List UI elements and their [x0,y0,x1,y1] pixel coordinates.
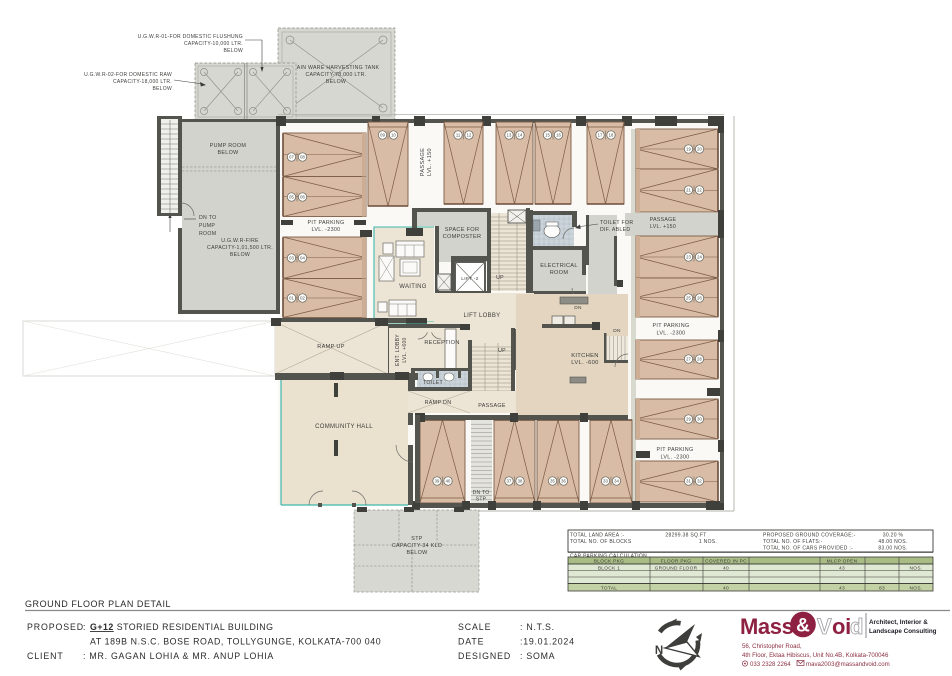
svg-text:21: 21 [686,188,691,193]
svg-text:: MR. GAGAN LOHIA & MR. ANUP L: : MR. GAGAN LOHIA & MR. ANUP LOHIA [83,651,274,661]
svg-text:18: 18 [609,133,614,138]
svg-text:&: & [796,616,810,637]
svg-text:13: 13 [507,133,512,138]
svg-text:TOILET: TOILET [423,380,443,386]
svg-text:40: 40 [723,586,729,592]
svg-text:28299.38 SQ.FT: 28299.38 SQ.FT [665,533,706,539]
svg-text:CAPACITY-10,000 LTR.: CAPACITY-10,000 LTR. [184,41,243,47]
svg-text:PIT PARKING: PIT PARKING [657,447,694,453]
svg-text:FLOOR PKG: FLOOR PKG [661,559,692,565]
svg-text:83: 83 [879,586,885,592]
svg-text:COVERED IN PC: COVERED IN PC [705,559,747,565]
svg-text:LVL. -2300: LVL. -2300 [657,331,686,337]
svg-text:CLIENT: CLIENT [27,651,64,661]
svg-text:BELOW: BELOW [230,252,250,258]
svg-text:UP: UP [498,348,506,354]
svg-text:BELOW: BELOW [152,86,172,92]
svg-text:GROUND FLOOR: GROUND FLOOR [655,566,698,572]
svg-text:BLOCK PKG: BLOCK PKG [594,559,624,565]
svg-text::: : [83,622,86,632]
svg-text:BELOW: BELOW [218,150,240,156]
svg-text:ROOM: ROOM [550,270,569,276]
svg-text:17: 17 [598,133,603,138]
svg-text:30.20 %: 30.20 % [883,533,904,539]
svg-text:PASSAGE: PASSAGE [650,217,677,223]
svg-text:UP: UP [496,275,504,281]
svg-text:TOTAL: TOTAL [601,586,618,592]
svg-text:DN: DN [574,305,582,311]
svg-text:32: 32 [697,479,702,484]
svg-text:ROOM: ROOM [199,231,216,237]
svg-text:mava2003@massandvoid.com: mava2003@massandvoid.com [806,661,890,668]
svg-text:TOILET FOR: TOILET FOR [600,220,633,226]
svg-text:05: 05 [289,195,294,200]
svg-text:48.00 NOS.: 48.00 NOS. [878,539,907,545]
svg-text:30: 30 [697,417,702,422]
svg-text:U.G.W.R-02-FOR DOMESTIC RAW: U.G.W.R-02-FOR DOMESTIC RAW [84,72,172,78]
svg-text:PUMP ROOM: PUMP ROOM [210,143,247,149]
svg-text:BELOW: BELOW [223,48,243,54]
svg-text:oi: oi [832,614,851,639]
svg-text:TOTAL LAND AREA :-: TOTAL LAND AREA :- [570,533,625,539]
svg-text:43: 43 [839,586,845,592]
svg-text:07: 07 [289,155,294,160]
svg-text:06: 06 [300,195,305,200]
svg-text:STP: STP [411,536,422,542]
svg-text:CAPACITY-78,000 LTR.: CAPACITY-78,000 LTR. [306,72,367,78]
svg-text:33: 33 [603,479,608,484]
svg-text:ENT. LOBBY: ENT. LOBBY [395,334,401,366]
svg-text:DN TO: DN TO [199,215,216,221]
svg-text:LVL. -2300: LVL. -2300 [312,227,341,233]
svg-text:TOTAL NO. OF FLATS:-: TOTAL NO. OF FLATS:- [763,539,823,545]
svg-text:Landscape Consulting: Landscape Consulting [869,628,937,635]
svg-text:01: 01 [289,296,294,301]
svg-text:09: 09 [380,133,385,138]
svg-text:40: 40 [723,566,729,572]
svg-text:SPACE FOR: SPACE FOR [445,227,480,233]
svg-text:COMPOSTER: COMPOSTER [443,234,482,240]
svg-text:NOS.: NOS. [910,586,923,592]
svg-text:KITCHEN: KITCHEN [571,353,599,359]
svg-text:24: 24 [697,255,702,260]
svg-text:LVL. +150: LVL. +150 [427,148,433,176]
svg-text:BELOW: BELOW [326,79,346,85]
svg-text:PIT PARKING: PIT PARKING [653,323,690,329]
svg-text:SCALE: SCALE [458,622,491,632]
svg-text:LVL. +600: LVL. +600 [402,337,408,362]
svg-text:U.G.W.R-01-FOR DOMESTIC FLUSHU: U.G.W.R-01-FOR DOMESTIC FLUSHUNG [138,34,243,40]
svg-text::19.01.2024: :19.01.2024 [520,637,575,647]
svg-text:11: 11 [456,133,461,138]
svg-text:U.G.W.R-FIRE: U.G.W.R-FIRE [221,238,259,244]
svg-text:RAMP DN: RAMP DN [425,400,452,406]
svg-text:1 NOS.: 1 NOS. [699,539,717,545]
svg-text:35: 35 [550,479,555,484]
svg-text:G+12 STORIED RESIDENTIAL BUILD: G+12 STORIED RESIDENTIAL BUILDING [90,622,273,632]
svg-text:15: 15 [545,133,550,138]
svg-text:26: 26 [697,296,702,301]
svg-text:25: 25 [686,296,691,301]
svg-text:LIFT -2: LIFT -2 [461,276,479,282]
svg-text:AT 189B N.S.C. BOSE ROAD, TOLL: AT 189B N.S.C. BOSE ROAD, TOLLYGUNGE, KO… [90,637,381,647]
svg-text:34: 34 [614,479,619,484]
svg-text:4th Floor, Ektaa Hibiscus, Uni: 4th Floor, Ektaa Hibiscus, Unit No.4B, K… [742,652,889,659]
svg-text:: SOMA: : SOMA [520,651,555,661]
svg-text:08: 08 [300,155,305,160]
svg-text:ELECTRICAL: ELECTRICAL [540,263,578,269]
svg-text:: N.T.S.: : N.T.S. [520,622,555,632]
svg-text:Architect, Interior &: Architect, Interior & [869,619,928,626]
svg-text:16: 16 [556,133,561,138]
svg-text:RAMP UP: RAMP UP [317,344,345,350]
svg-text:DATE: DATE [458,637,484,647]
svg-text:WAITING: WAITING [399,284,427,290]
svg-text:LIFT LOBBY: LIFT LOBBY [464,313,501,319]
svg-text:37: 37 [507,479,512,484]
svg-text:TOTAL NO. OF BLOCKS: TOTAL NO. OF BLOCKS [570,539,632,545]
svg-text:BELOW: BELOW [407,550,429,556]
svg-text:PROPOSED GROUND COVERAGE:-: PROPOSED GROUND COVERAGE:- [763,533,856,539]
svg-text:BLOCK 1: BLOCK 1 [598,566,620,572]
svg-text:20: 20 [697,147,702,152]
svg-text:40: 40 [446,479,451,484]
svg-text:GROUND FLOOR PLAN DETAIL: GROUND FLOOR PLAN DETAIL [25,599,171,609]
svg-text:03: 03 [289,256,294,261]
svg-text:19: 19 [686,147,691,152]
svg-text:CAPACITY-1,01,500 LTR.: CAPACITY-1,01,500 LTR. [207,245,273,251]
svg-text:02: 02 [300,296,305,301]
svg-text:83.00 NOS.: 83.00 NOS. [878,546,907,552]
svg-text:PASSAGE: PASSAGE [478,403,506,409]
svg-text:d: d [850,614,863,639]
svg-text:DN TO: DN TO [473,490,490,496]
svg-text:CAPACITY-34 KLD: CAPACITY-34 KLD [392,543,442,549]
svg-text:DN: DN [613,328,621,334]
svg-text:43: 43 [839,566,845,572]
svg-text:V: V [817,614,832,639]
svg-text:PROPOSED: PROPOSED [27,622,84,632]
svg-text:DIF. ABLED: DIF. ABLED [600,227,630,233]
svg-text:23: 23 [686,255,691,260]
svg-text:12: 12 [467,133,472,138]
svg-text:31: 31 [686,479,691,484]
svg-text:RECEPTION: RECEPTION [424,340,459,346]
svg-text:033 2328 2264: 033 2328 2264 [750,661,791,668]
svg-text:PUMP: PUMP [199,223,215,229]
svg-text:RAIN WARE HARVESTING TANK: RAIN WARE HARVESTING TANK [293,65,380,71]
svg-text:NOS.: NOS. [910,566,923,572]
svg-text:DESIGNED: DESIGNED [458,651,511,661]
svg-text:27: 27 [686,357,691,362]
svg-text:10: 10 [391,133,396,138]
svg-text:TOTAL NO. OF CARS PROVIDED :-: TOTAL NO. OF CARS PROVIDED :- [763,546,853,552]
svg-text:PIT PARKING: PIT PARKING [308,220,345,226]
svg-text:LVL. -2300: LVL. -2300 [661,455,690,461]
svg-text:MLCP OPEN: MLCP OPEN [827,559,858,565]
svg-text:28: 28 [697,357,702,362]
svg-text:22: 22 [697,188,702,193]
svg-text:Mass: Mass [740,614,794,639]
svg-text:56, Christopher Road,: 56, Christopher Road, [742,643,802,650]
svg-text:LVL. +150: LVL. +150 [650,224,676,230]
svg-text:LVL. -600: LVL. -600 [571,360,598,366]
svg-text:04: 04 [300,256,305,261]
svg-text:36: 36 [561,479,566,484]
svg-text:39: 39 [435,479,440,484]
svg-text:14: 14 [518,133,523,138]
svg-text:N: N [655,645,663,657]
svg-text:29: 29 [686,417,691,422]
svg-text:38: 38 [518,479,523,484]
svg-text:COMMUNITY HALL: COMMUNITY HALL [315,424,373,430]
svg-text:CAPACITY-18,000 LTR.: CAPACITY-18,000 LTR. [113,79,172,85]
svg-text:STP: STP [476,497,487,503]
svg-text:PASSAGE: PASSAGE [420,148,426,176]
